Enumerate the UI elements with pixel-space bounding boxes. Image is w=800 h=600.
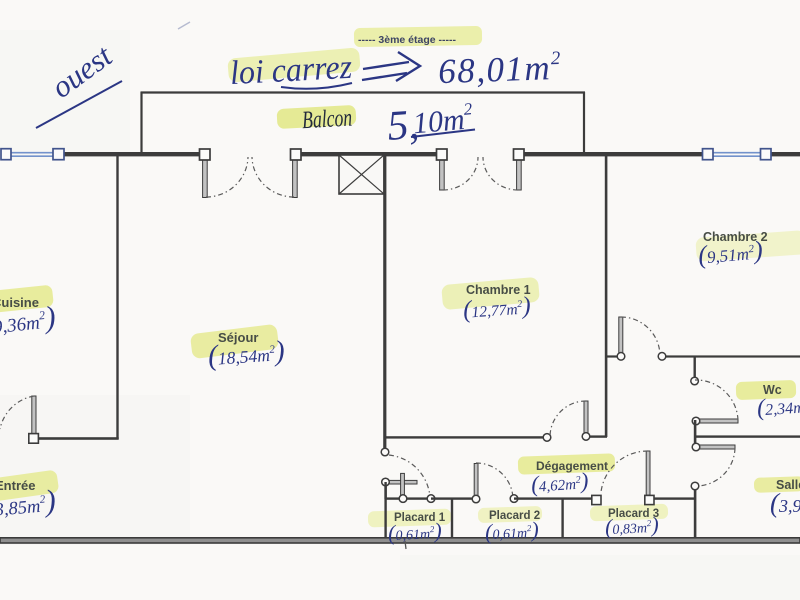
svg-text:Wc: Wc [763,383,782,397]
svg-text:Salle: Salle [776,478,800,492]
svg-text:Dégagement: Dégagement [536,459,608,473]
svg-text:68,01m2: 68,01m2 [438,48,563,91]
svg-text:Entrée: Entrée [0,478,35,493]
svg-text:Balcon: Balcon [301,105,352,135]
svg-text:Séjour: Séjour [218,330,258,345]
svg-text:----- 3ème étage -----: ----- 3ème étage ----- [358,34,457,46]
svg-text:Cuisine: Cuisine [0,295,39,310]
